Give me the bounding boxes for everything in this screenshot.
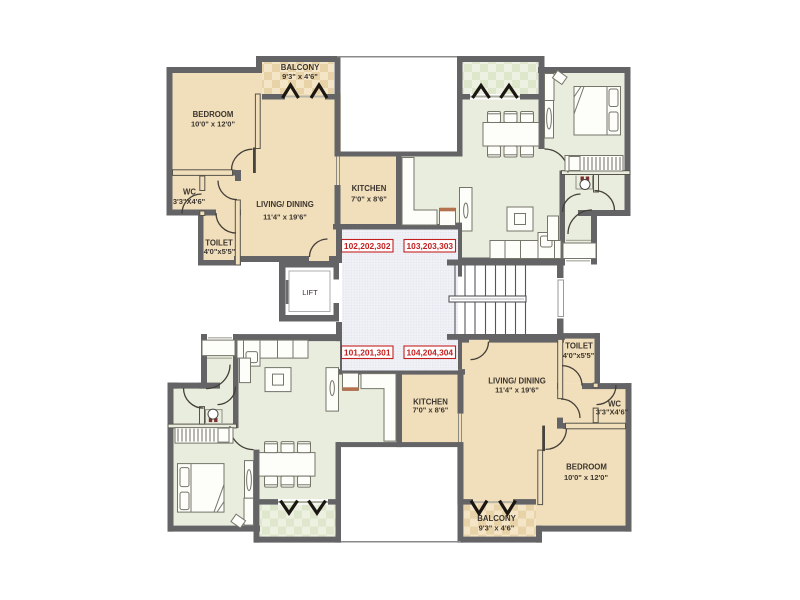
svg-text:10'0" x 12'0": 10'0" x 12'0" <box>191 120 235 129</box>
svg-text:11'4" x 19'6": 11'4" x 19'6" <box>263 213 307 222</box>
svg-text:7'0" x 8'6": 7'0" x 8'6" <box>413 406 449 415</box>
svg-text:9'3" x 4'6": 9'3" x 4'6" <box>479 524 515 533</box>
svg-text:LIVING/ DINING: LIVING/ DINING <box>488 377 546 386</box>
svg-text:103,203,303: 103,203,303 <box>407 241 454 251</box>
svg-text:7'0" x 8'6": 7'0" x 8'6" <box>351 195 387 204</box>
svg-text:3'3"X4'6": 3'3"X4'6" <box>173 197 206 206</box>
svg-text:LIVING/ DINING: LIVING/ DINING <box>256 200 314 209</box>
svg-text:10'0" x 12'0": 10'0" x 12'0" <box>564 473 608 482</box>
svg-text:WC: WC <box>183 188 196 197</box>
svg-text:BALCONY: BALCONY <box>281 63 320 72</box>
svg-text:4'0"x5'5": 4'0"x5'5" <box>563 351 595 360</box>
svg-text:11'4" x 19'6": 11'4" x 19'6" <box>495 386 539 395</box>
svg-text:3'3"X4'6": 3'3"X4'6" <box>596 408 629 417</box>
svg-text:TOILET: TOILET <box>565 342 593 351</box>
svg-text:101,201,301: 101,201,301 <box>344 348 391 358</box>
svg-text:BEDROOM: BEDROOM <box>566 463 607 472</box>
svg-text:KITCHEN: KITCHEN <box>352 184 387 193</box>
svg-text:104,204,304: 104,204,304 <box>407 348 454 358</box>
svg-text:4'0"x5'5": 4'0"x5'5" <box>204 247 236 256</box>
svg-text:9'3" x 4'6": 9'3" x 4'6" <box>282 72 318 81</box>
svg-text:LIFT: LIFT <box>302 288 318 297</box>
svg-text:BEDROOM: BEDROOM <box>193 110 234 119</box>
svg-text:BALCONY: BALCONY <box>477 514 516 523</box>
svg-text:102,202,302: 102,202,302 <box>344 241 391 251</box>
